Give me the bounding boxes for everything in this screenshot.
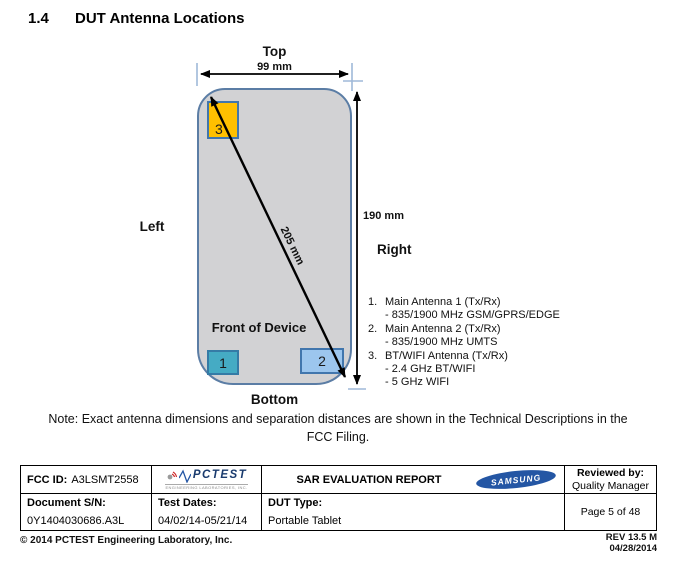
legend-number: 2. xyxy=(368,323,385,336)
top-side-label: Top xyxy=(197,44,352,59)
section-heading: 1.4DUT Antenna Locations xyxy=(28,10,244,27)
note-line-2: FCC Filing. xyxy=(0,428,676,446)
dut-type-label: DUT Type: xyxy=(268,497,558,509)
list-item-detail: - 835/1900 MHz UMTS xyxy=(368,336,560,349)
report-title-cell: SAR EVALUATION REPORT SAMSUNG xyxy=(262,466,565,494)
right-side-label: Right xyxy=(377,242,412,257)
antenna-box-2-label: 2 xyxy=(318,353,326,369)
page-number: Page 5 of 48 xyxy=(581,506,641,518)
front-of-device-label: Front of Device xyxy=(206,320,312,335)
document-page: 1.4DUT Antenna Locations Top 99 mm Left … xyxy=(0,0,676,567)
samsung-logo: SAMSUNG xyxy=(475,467,556,492)
test-dates-value: 04/02/14-05/21/14 xyxy=(158,515,255,527)
antenna-box-1: 1 xyxy=(207,350,239,375)
section-number: 1.4 xyxy=(28,10,75,27)
antenna-box-3-label: 3 xyxy=(215,121,223,137)
document-sn-cell: Document S/N: 0Y1404030686.A3L xyxy=(21,494,152,530)
legend-detail: - 835/1900 MHz GSM/GPRS/EDGE xyxy=(385,309,560,322)
pctest-logo-text: PCTEST xyxy=(193,470,247,482)
revision-block: REV 13.5 M 04/28/2014 xyxy=(606,533,657,554)
reviewed-by-label: Reviewed by: xyxy=(577,467,644,480)
dut-type-value: Portable Tablet xyxy=(268,515,558,527)
list-item-detail: - 2.4 GHz BT/WIFI xyxy=(368,363,560,376)
width-dimension-label: 99 mm xyxy=(197,61,352,73)
document-sn-value: 0Y1404030686.A3L xyxy=(27,515,145,527)
list-item-detail: - 835/1900 MHz GSM/GPRS/EDGE xyxy=(368,309,560,322)
note-text: Note: Exact antenna dimensions and separ… xyxy=(0,410,676,446)
test-dates-cell: Test Dates: 04/02/14-05/21/14 xyxy=(152,494,262,530)
document-sn-label: Document S/N: xyxy=(27,497,145,509)
legend-name: Main Antenna 2 (Tx/Rx) xyxy=(385,323,501,336)
reviewed-by-cell: Reviewed by: Quality Manager xyxy=(565,466,656,494)
revision-date: 04/28/2014 xyxy=(606,544,657,555)
samsung-logo-text: SAMSUNG xyxy=(490,472,541,487)
page-number-cell: Page 5 of 48 xyxy=(565,494,656,530)
antenna-box-3: 3 xyxy=(207,101,239,139)
antenna-box-2: 2 xyxy=(300,348,344,374)
legend-detail: - 5 GHz WIFI xyxy=(385,376,449,389)
fcc-id-value: A3LSMT2558 xyxy=(71,474,138,486)
pctest-logo: PCTEST ENGINEERING LABORATORIES, INC. xyxy=(165,469,247,490)
page-title: DUT Antenna Locations xyxy=(75,10,244,27)
list-item: 2. Main Antenna 2 (Tx/Rx) xyxy=(368,323,560,336)
height-dimension-label: 190 mm xyxy=(363,210,404,222)
list-item: 3. BT/WIFI Antenna (Tx/Rx) xyxy=(368,350,560,363)
pctest-logo-cell: PCTEST ENGINEERING LABORATORIES, INC. xyxy=(152,466,262,494)
pctest-antenna-icon xyxy=(166,471,177,482)
list-item-detail: - 5 GHz WIFI xyxy=(368,376,560,389)
legend-detail: - 2.4 GHz BT/WIFI xyxy=(385,363,475,376)
left-side-label: Left xyxy=(130,219,174,234)
list-item: 1. Main Antenna 1 (Tx/Rx) xyxy=(368,296,560,309)
pctest-logo-subtext: ENGINEERING LABORATORIES, INC. xyxy=(165,484,247,490)
dut-type-cell: DUT Type: Portable Tablet xyxy=(262,494,565,530)
reviewed-by-value: Quality Manager xyxy=(572,480,649,493)
revision-number: REV 13.5 M xyxy=(606,533,657,544)
legend-number: 3. xyxy=(368,350,385,363)
fcc-id-label: FCC ID: xyxy=(27,474,67,486)
bottom-side-label: Bottom xyxy=(197,392,352,407)
report-title: SAR EVALUATION REPORT xyxy=(262,474,476,486)
legend-number: 1. xyxy=(368,296,385,309)
note-line-1: Note: Exact antenna dimensions and separ… xyxy=(0,410,676,428)
legend-name: BT/WIFI Antenna (Tx/Rx) xyxy=(385,350,508,363)
fcc-id-cell: FCC ID: A3LSMT2558 xyxy=(21,466,152,494)
antenna-legend: 1. Main Antenna 1 (Tx/Rx) - 835/1900 MHz… xyxy=(368,296,560,390)
copyright-text: © 2014 PCTEST Engineering Laboratory, In… xyxy=(20,535,232,546)
footer-table: FCC ID: A3LSMT2558 PCTEST ENGINEERING LA… xyxy=(20,465,657,531)
antenna-box-1-label: 1 xyxy=(219,355,227,371)
test-dates-label: Test Dates: xyxy=(158,497,255,509)
legend-name: Main Antenna 1 (Tx/Rx) xyxy=(385,296,501,309)
pctest-pulse-icon xyxy=(179,469,191,483)
legend-detail: - 835/1900 MHz UMTS xyxy=(385,336,497,349)
